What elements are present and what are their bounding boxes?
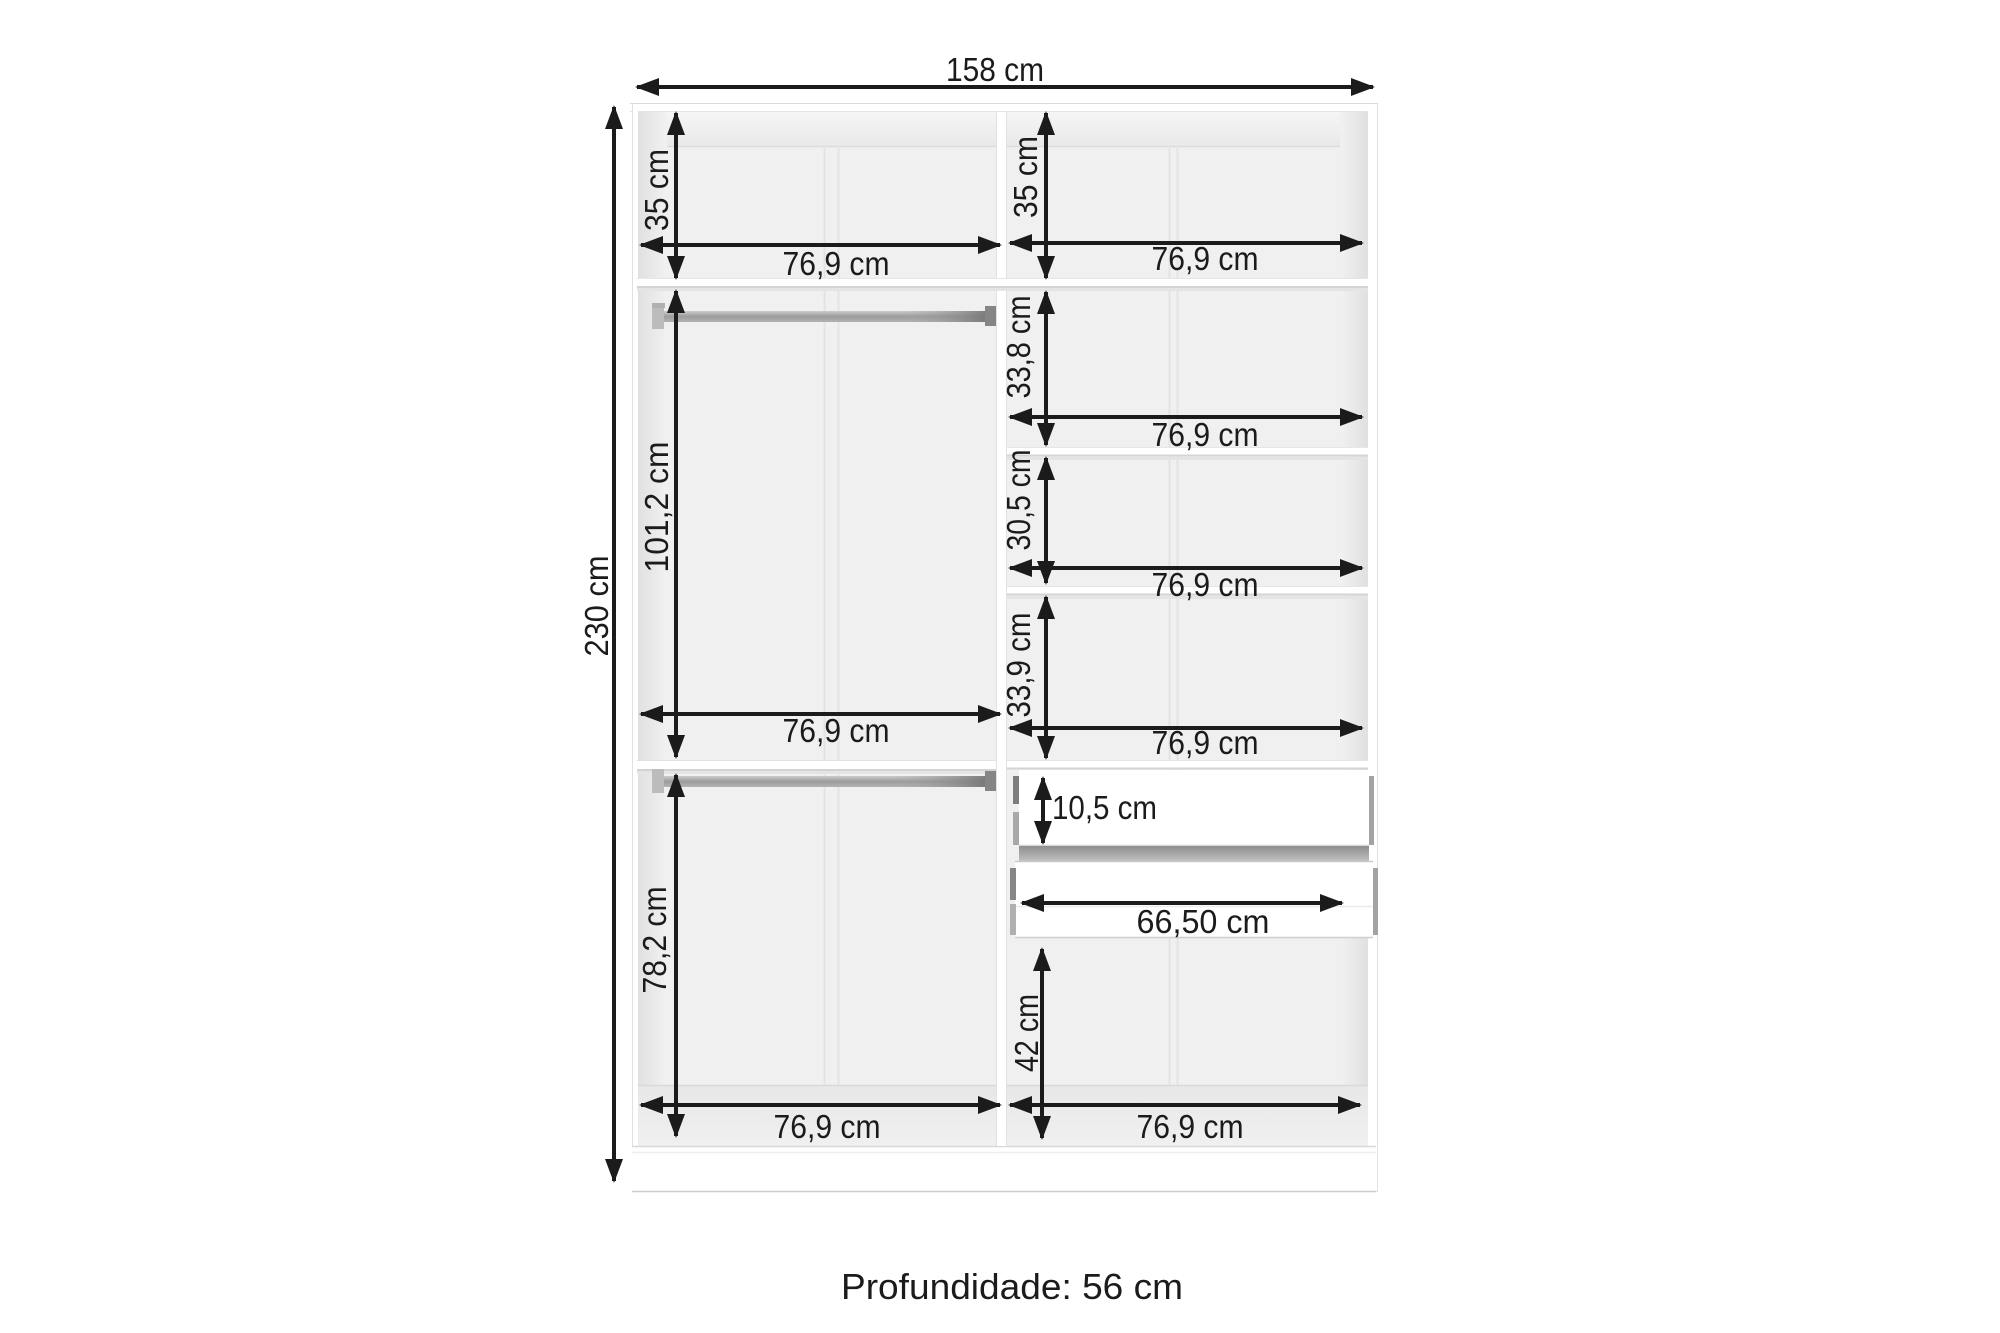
svg-text:76,9 cm: 76,9 cm (1152, 240, 1259, 277)
svg-text:76,9 cm: 76,9 cm (783, 245, 890, 282)
svg-text:35 cm: 35 cm (1007, 136, 1044, 218)
svg-text:33,9 cm: 33,9 cm (1000, 613, 1037, 718)
svg-text:230 cm: 230 cm (578, 556, 615, 657)
svg-text:30,5 cm: 30,5 cm (1000, 450, 1037, 551)
svg-text:10,5 cm: 10,5 cm (1052, 789, 1157, 826)
svg-text:66,50 cm: 66,50 cm (1137, 903, 1270, 940)
svg-text:76,9 cm: 76,9 cm (774, 1108, 881, 1145)
svg-text:42 cm: 42 cm (1008, 994, 1045, 1072)
svg-text:76,9 cm: 76,9 cm (783, 712, 890, 749)
svg-text:33,8 cm: 33,8 cm (1000, 296, 1037, 399)
svg-text:101,2 cm: 101,2 cm (638, 442, 675, 573)
svg-text:76,9 cm: 76,9 cm (1152, 566, 1259, 603)
svg-text:35 cm: 35 cm (638, 149, 675, 231)
svg-text:76,9 cm: 76,9 cm (1137, 1108, 1244, 1145)
svg-text:158 cm: 158 cm (946, 51, 1044, 88)
svg-text:Profundidade: 56 cm: Profundidade: 56 cm (841, 1266, 1183, 1307)
svg-text:76,9 cm: 76,9 cm (1152, 416, 1259, 453)
svg-text:76,9 cm: 76,9 cm (1152, 724, 1259, 761)
svg-text:78,2 cm: 78,2 cm (636, 887, 673, 994)
